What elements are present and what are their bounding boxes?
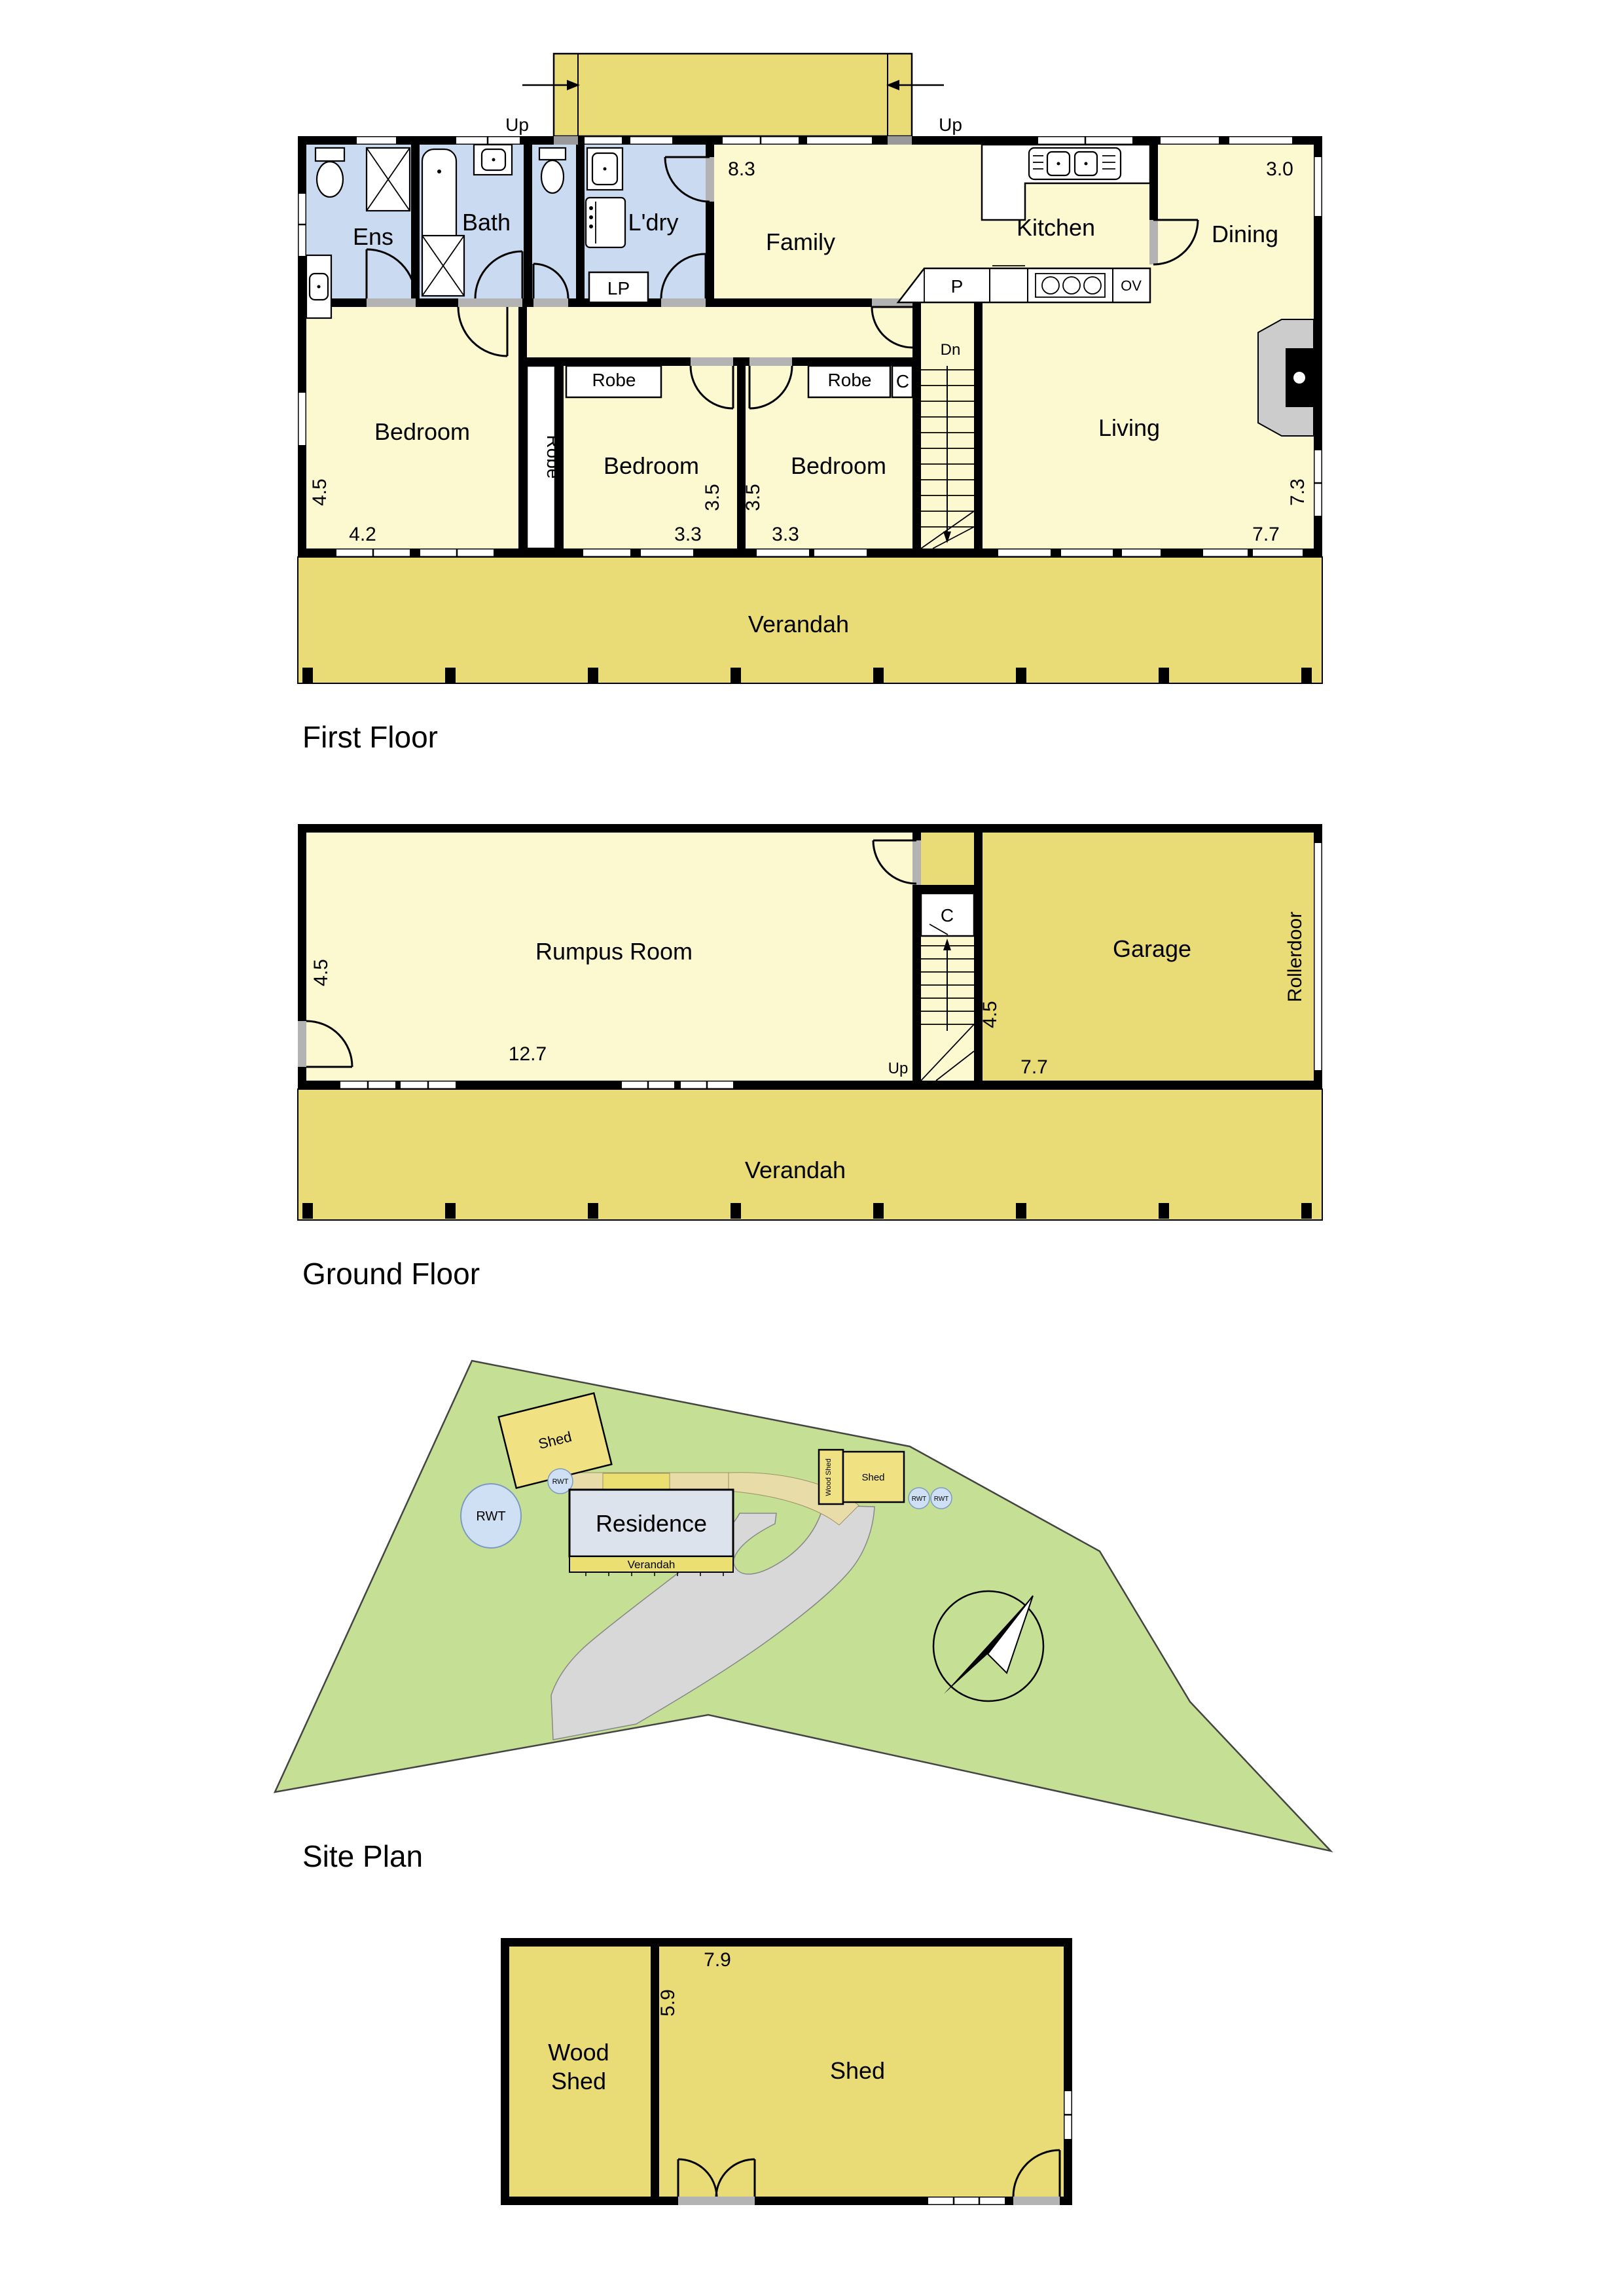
label-robe3: Robe bbox=[828, 370, 872, 390]
site-wood-shed-label: Wood Shed bbox=[825, 1458, 833, 1496]
room-label-bath: Bath bbox=[462, 209, 511, 236]
wood-shed-label-1: Wood bbox=[548, 2039, 609, 2066]
room-label-family: Family bbox=[766, 228, 835, 255]
site-residence-label: Residence bbox=[596, 1510, 707, 1537]
room-label-kitchen: Kitchen bbox=[1017, 214, 1095, 241]
dim-bed1-width: 4.2 bbox=[349, 524, 376, 545]
label-lp: LP bbox=[607, 278, 630, 298]
laundry-fixtures bbox=[586, 148, 625, 247]
site-plan: Shed RWT RWT Residence Verandah Wood She… bbox=[275, 1361, 1331, 1873]
rwt-large-label: RWT bbox=[476, 1509, 505, 1524]
label-verandah-gf: Verandah bbox=[745, 1157, 846, 1183]
section-label-site-plan: Site Plan bbox=[302, 1839, 423, 1873]
label-robe-tall: Robe bbox=[543, 435, 564, 479]
section-label-first-floor: First Floor bbox=[302, 720, 438, 754]
label-oven: OV bbox=[1121, 278, 1142, 294]
room-label-laundry: L'dry bbox=[628, 209, 679, 236]
label-pantry: P bbox=[951, 276, 964, 296]
ground-floor-verandah bbox=[298, 1089, 1322, 1220]
toilet-icon bbox=[539, 148, 566, 160]
dim-bed3-depth: 3.5 bbox=[742, 484, 764, 511]
dim-living-width: 7.7 bbox=[1252, 524, 1280, 545]
rwt-east-1-label: RWT bbox=[912, 1496, 927, 1503]
site-shed-east-label: Shed bbox=[861, 1472, 884, 1483]
label-up-gf: Up bbox=[888, 1060, 909, 1077]
dim-dining-width: 3.0 bbox=[1266, 158, 1293, 180]
label-closet-c-gf: C bbox=[941, 905, 954, 925]
ground-floor-plan: Rumpus Room Garage C Up Rollerdoor Veran… bbox=[298, 824, 1322, 1291]
shed-plan: Wood Shed Shed 7.9 5.9 bbox=[501, 1938, 1072, 2205]
dim-bed2-width: 3.3 bbox=[674, 524, 702, 545]
label-verandah-ff: Verandah bbox=[748, 611, 849, 638]
rwt-east-2-label: RWT bbox=[934, 1496, 949, 1503]
floorplan-drawing: Up Up bbox=[0, 0, 1624, 2281]
dim-bed2-depth: 3.5 bbox=[702, 484, 723, 511]
room-label-ens: Ens bbox=[353, 223, 393, 250]
dim-rumpus-depth: 4.5 bbox=[310, 959, 332, 986]
shed-label: Shed bbox=[830, 2057, 885, 2084]
room-label-garage: Garage bbox=[1113, 935, 1191, 962]
room-label-dining: Dining bbox=[1212, 221, 1278, 247]
deck bbox=[554, 54, 912, 136]
deck-up-right-label: Up bbox=[939, 115, 962, 135]
dim-stair-depth: 4.5 bbox=[979, 1001, 1001, 1028]
fireplace-icon bbox=[1258, 319, 1314, 436]
toilet-icon bbox=[316, 148, 344, 161]
dim-shed-depth: 5.9 bbox=[657, 1989, 679, 2017]
section-label-ground-floor: Ground Floor bbox=[302, 1257, 480, 1291]
first-floor-plan: Up Up bbox=[298, 54, 1322, 754]
label-down: Dn bbox=[941, 341, 961, 359]
room-label-bedroom3: Bedroom bbox=[791, 452, 886, 479]
site-verandah-label: Verandah bbox=[628, 1558, 676, 1571]
deck-up-left-label: Up bbox=[505, 115, 529, 135]
dim-family-width: 8.3 bbox=[728, 158, 755, 180]
garage-landing bbox=[921, 833, 974, 885]
floorplan-page: Up Up bbox=[0, 0, 1624, 2281]
dim-living-depth: 7.3 bbox=[1287, 478, 1308, 506]
dim-garage-width: 7.7 bbox=[1020, 1056, 1048, 1078]
rwt-near-house-label: RWT bbox=[552, 1478, 569, 1486]
washing-machine-icon bbox=[586, 198, 625, 247]
rollerdoor-opening bbox=[1315, 843, 1322, 1070]
dim-bed3-width: 3.3 bbox=[772, 524, 799, 545]
label-robe2: Robe bbox=[592, 370, 636, 390]
room-label-bedroom1: Bedroom bbox=[374, 418, 470, 445]
wood-shed-label-2: Shed bbox=[551, 2068, 606, 2094]
dim-shed-width: 7.9 bbox=[704, 1949, 731, 1971]
label-closet-c: C bbox=[896, 371, 909, 391]
wc-fixtures bbox=[539, 148, 566, 193]
room-label-rumpus: Rumpus Room bbox=[535, 938, 693, 965]
room-label-living: Living bbox=[1098, 414, 1160, 441]
label-rollerdoor: Rollerdoor bbox=[1284, 912, 1306, 1002]
dim-rumpus-width: 12.7 bbox=[509, 1043, 547, 1065]
room-label-bedroom2: Bedroom bbox=[604, 452, 699, 479]
dim-bed1-depth: 4.5 bbox=[309, 478, 331, 506]
